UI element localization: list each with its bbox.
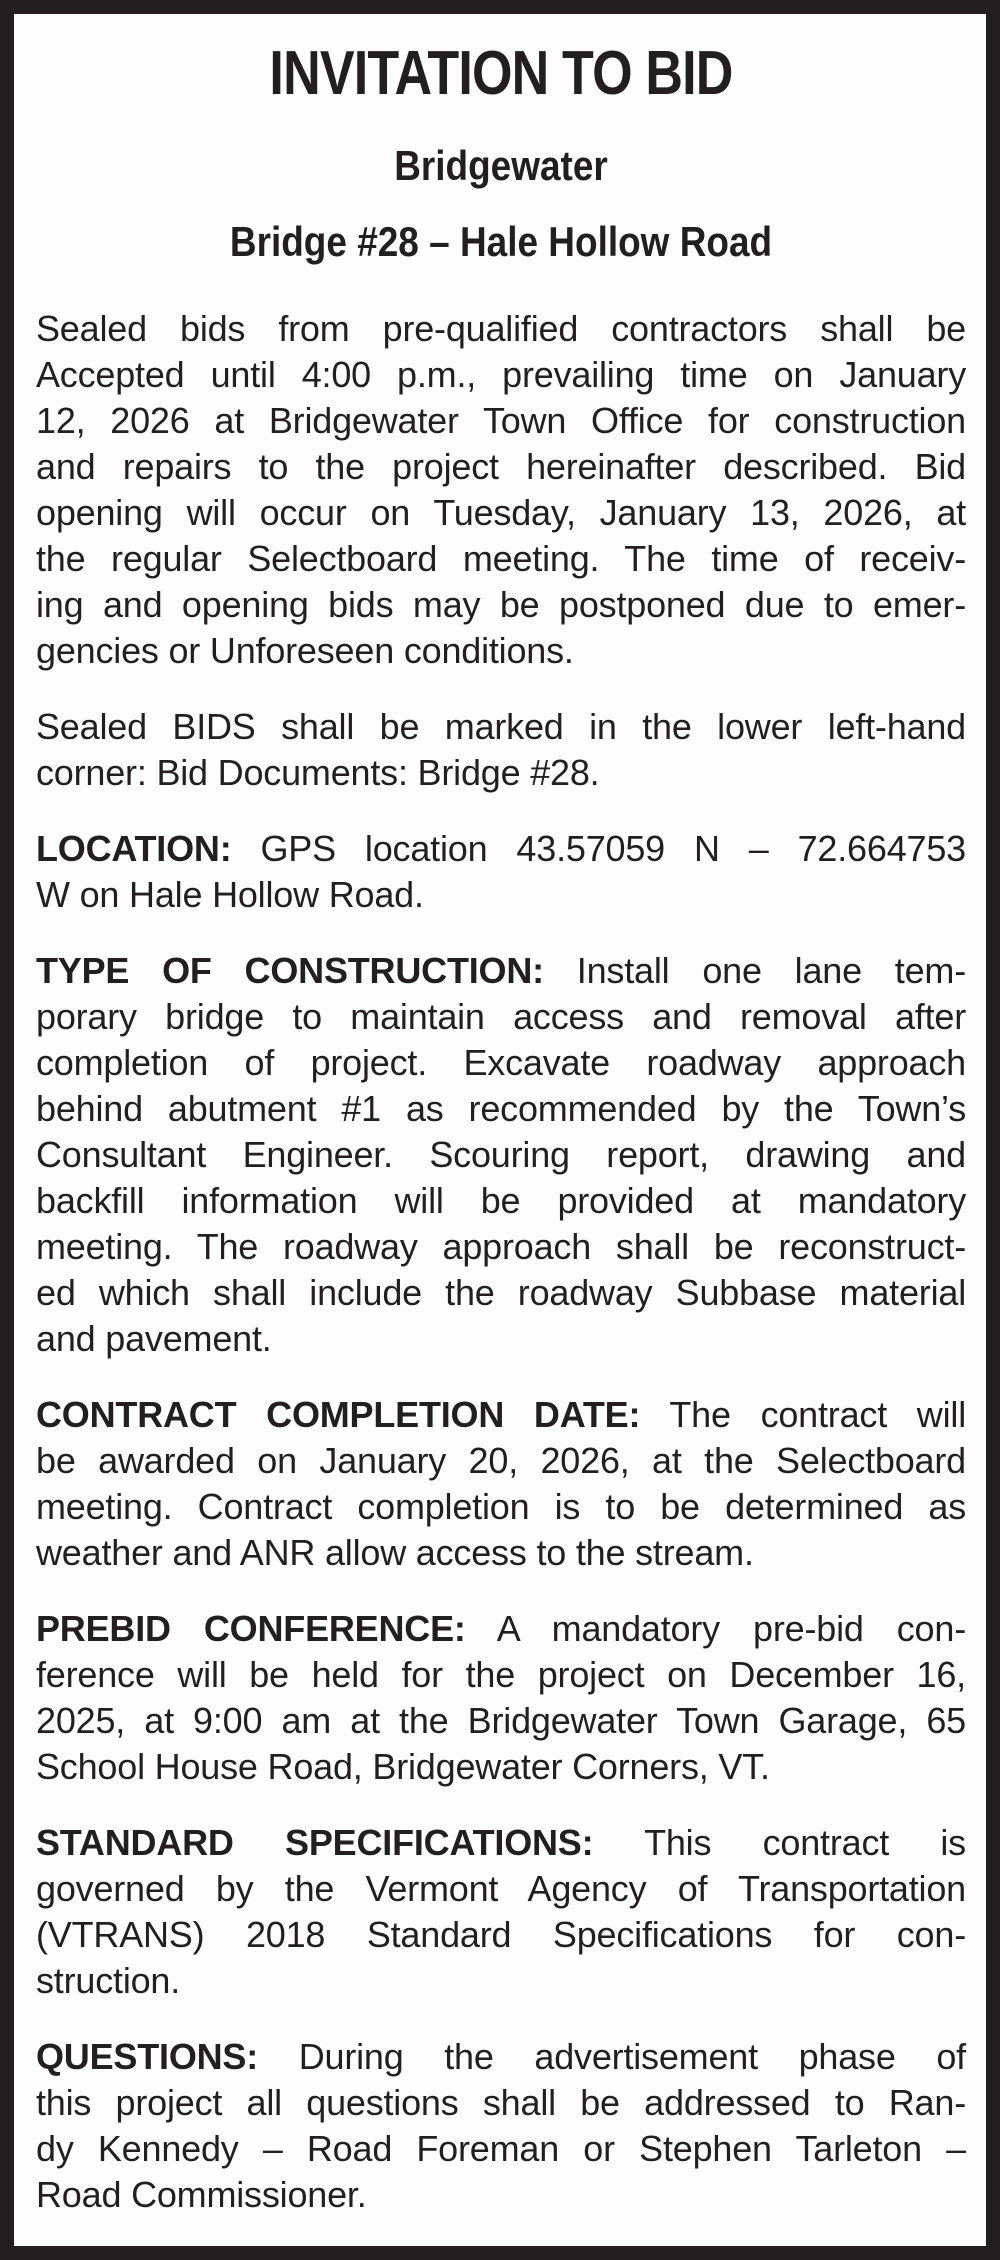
- text-line: backfill information will be provided at…: [36, 1178, 966, 1224]
- text-line: 12, 2026 at Bridgewater Town Office for …: [36, 398, 966, 444]
- text-line: meeting. The roadway approach shall be r…: [36, 1224, 966, 1270]
- text-line: ing and opening bids may be postponed du…: [36, 582, 966, 628]
- section-lead: LOCATION:: [36, 828, 232, 869]
- section-lead: STANDARD SPECIFICATIONS:: [36, 1822, 593, 1863]
- text-line: opening will occur on Tuesday, January 1…: [36, 490, 966, 536]
- notice-title: INVITATION TO BID: [110, 42, 891, 106]
- text-line: School House Road, Bridgewater Corners, …: [36, 1744, 966, 1790]
- paragraph: QUESTIONS: During the advertisement phas…: [36, 2034, 966, 2218]
- body-paragraphs: Sealed bids from pre-qualified contracto…: [36, 306, 966, 2218]
- text-line: ed which shall include the roadway Subba…: [36, 1270, 966, 1316]
- paragraph: CONTRACT COMPLETION DATE: The contract w…: [36, 1392, 966, 1576]
- paragraph: Sealed BIDS shall be marked in the lower…: [36, 704, 966, 796]
- text-line: Accepted until 4:00 p.m., prevailing tim…: [36, 352, 966, 398]
- text-line: struction.: [36, 1958, 966, 2004]
- text-line: TYPE OF CONSTRUCTION: Install one lane t…: [36, 948, 966, 994]
- notice-subtitle-bridge: Bridge #28 – Hale Hollow Road: [92, 220, 910, 264]
- text-line: QUESTIONS: During the advertisement phas…: [36, 2034, 966, 2080]
- text-line: (VTRANS) 2018 Standard Specifications fo…: [36, 1912, 966, 1958]
- text-line: ference will be held for the project on …: [36, 1652, 966, 1698]
- invitation-notice: INVITATION TO BID Bridgewater Bridge #28…: [0, 0, 1000, 2260]
- paragraph: PREBID CONFERENCE: A mandatory pre-bid c…: [36, 1606, 966, 1790]
- paragraph: STANDARD SPECIFICATIONS: This contract i…: [36, 1820, 966, 2004]
- text-line: and pavement.: [36, 1316, 966, 1362]
- text-line: weather and ANR allow access to the stre…: [36, 1530, 966, 1576]
- section-lead: TYPE OF CONSTRUCTION:: [36, 950, 544, 991]
- text-line: meeting. Contract completion is to be de…: [36, 1484, 966, 1530]
- text-line: porary bridge to maintain access and rem…: [36, 994, 966, 1040]
- text-line: Sealed bids from pre-qualified contracto…: [36, 306, 966, 352]
- text-line: dy Kennedy – Road Foreman or Stephen Tar…: [36, 2126, 966, 2172]
- text-line: CONTRACT COMPLETION DATE: The contract w…: [36, 1392, 966, 1438]
- text-line: corner: Bid Documents: Bridge #28.: [36, 750, 966, 796]
- text-line: PREBID CONFERENCE: A mandatory pre-bid c…: [36, 1606, 966, 1652]
- text-line: gencies or Unforeseen conditions.: [36, 628, 966, 674]
- notice-subtitle-town: Bridgewater: [92, 144, 910, 188]
- text-line: STANDARD SPECIFICATIONS: This contract i…: [36, 1820, 966, 1866]
- text-line: governed by the Vermont Agency of Transp…: [36, 1866, 966, 1912]
- text-line: behind abutment #1 as recommended by the…: [36, 1086, 966, 1132]
- section-lead: CONTRACT COMPLETION DATE:: [36, 1394, 640, 1435]
- paragraph: Sealed bids from pre-qualified contracto…: [36, 306, 966, 674]
- text-line: LOCATION: GPS location 43.57059 N – 72.6…: [36, 826, 966, 872]
- text-line: the regular Selectboard meeting. The tim…: [36, 536, 966, 582]
- text-line: Consultant Engineer. Scouring report, dr…: [36, 1132, 966, 1178]
- text-line: Sealed BIDS shall be marked in the lower…: [36, 704, 966, 750]
- text-line: Road Commissioner.: [36, 2172, 966, 2218]
- text-line: be awarded on January 20, 2026, at the S…: [36, 1438, 966, 1484]
- section-lead: QUESTIONS:: [36, 2036, 258, 2077]
- text-line: and repairs to the project hereinafter d…: [36, 444, 966, 490]
- paragraph: LOCATION: GPS location 43.57059 N – 72.6…: [36, 826, 966, 918]
- paragraph: TYPE OF CONSTRUCTION: Install one lane t…: [36, 948, 966, 1362]
- text-line: W on Hale Hollow Road.: [36, 872, 966, 918]
- section-lead: PREBID CONFERENCE:: [36, 1608, 466, 1649]
- text-line: completion of project. Excavate roadway …: [36, 1040, 966, 1086]
- text-line: this project all questions shall be addr…: [36, 2080, 966, 2126]
- text-line: 2025, at 9:00 am at the Bridgewater Town…: [36, 1698, 966, 1744]
